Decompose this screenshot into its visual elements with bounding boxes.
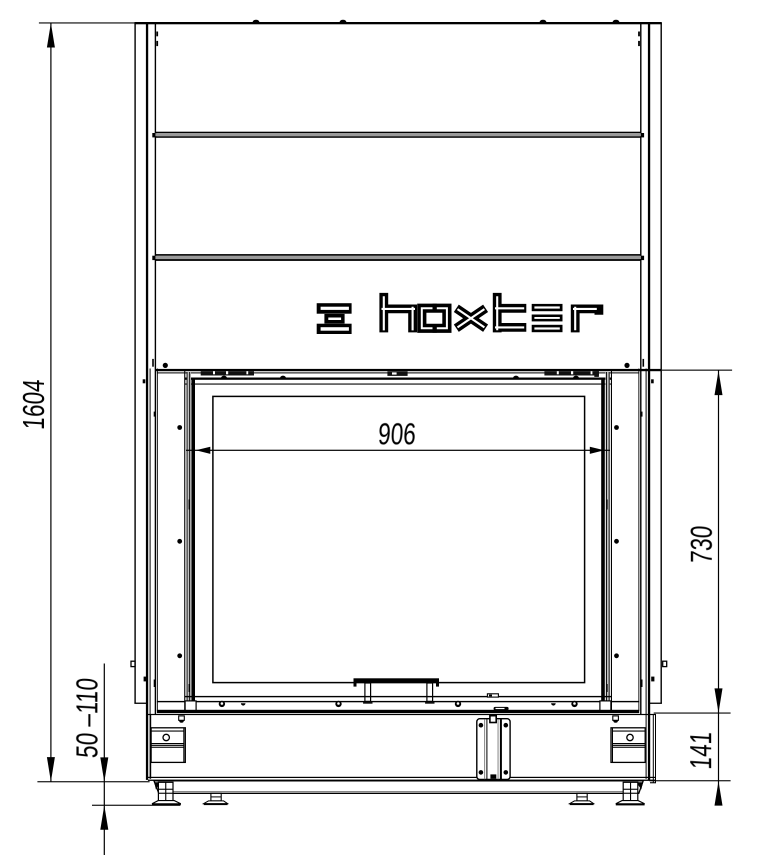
svg-text:730: 730 [685,525,719,565]
svg-text:141: 141 [684,730,718,770]
svg-text:906: 906 [377,417,417,451]
svg-text:50 –110: 50 –110 [70,677,104,759]
svg-text:1604: 1604 [17,378,51,430]
